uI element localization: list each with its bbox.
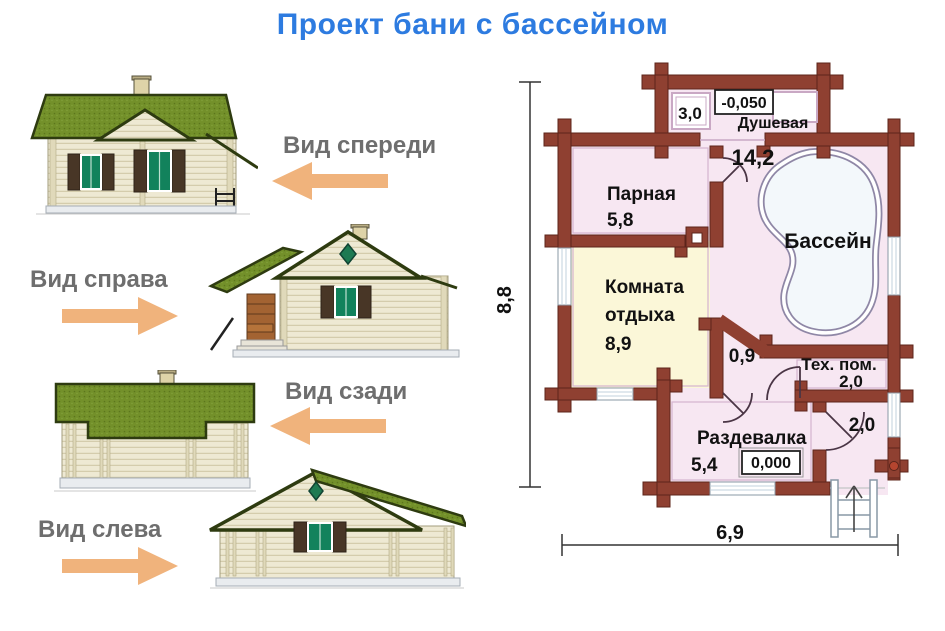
chimney xyxy=(134,79,149,96)
window xyxy=(134,150,185,192)
plan-label-dressing-level: 0,000 xyxy=(751,455,791,472)
floor-plan: 3,0 -0,050 Душевая 14,2 Парная 5,8 Бассе… xyxy=(495,60,945,630)
foundation xyxy=(233,350,459,357)
arrow-left-icon xyxy=(270,406,386,446)
plan-label-lounge-area: 8,9 xyxy=(605,334,631,355)
house-left-view-illustration xyxy=(206,466,466,590)
plan-label-vestibule-area: 2,0 xyxy=(849,415,875,436)
arrow-left-icon xyxy=(272,161,388,201)
plan-label-dressing-area: 5,4 xyxy=(691,455,718,476)
plan-label-lounge-name-1: Комната xyxy=(605,277,684,298)
sauna-stove xyxy=(686,227,708,247)
view-label-right: Вид справа xyxy=(30,266,168,294)
window xyxy=(321,286,371,318)
plan-label-tech-area: 2,0 xyxy=(839,372,863,391)
house-front-view-illustration xyxy=(28,72,258,216)
plan-label-lounge-name-2: отдыха xyxy=(605,305,675,326)
plan-label-corridor-area: 0,9 xyxy=(729,346,755,367)
plan-label-shower-level: -0,050 xyxy=(721,95,766,112)
house-right-view-illustration xyxy=(203,224,471,358)
arrow-right-icon xyxy=(62,546,178,586)
plan-label-steam-area: 5,8 xyxy=(607,210,633,231)
view-label-back: Вид сзади xyxy=(285,378,407,406)
plan-label-pool-name: Бассейн xyxy=(784,230,871,253)
plan-label-dressing-name: Раздевалка xyxy=(697,428,807,449)
view-label-front: Вид спереди xyxy=(283,132,436,160)
entry-stairs xyxy=(831,480,877,537)
foundation xyxy=(46,206,236,213)
plan-label-shower-area: 3,0 xyxy=(678,104,702,123)
plan-dim-height: 8,8 xyxy=(495,286,516,314)
log-end-circle xyxy=(890,462,899,471)
window xyxy=(68,154,114,190)
view-label-left: Вид слева xyxy=(38,516,161,544)
plan-label-shower-name: Душевая xyxy=(738,115,809,132)
bathhouse-project-diagram: Проект бани с бассейном xyxy=(0,0,945,631)
plan-dim-width: 6,9 xyxy=(716,522,744,544)
page-title: Проект бани с бассейном xyxy=(0,8,945,42)
window xyxy=(294,522,346,552)
plan-label-steam-name: Парная xyxy=(607,184,676,205)
porch-door-steps xyxy=(211,294,287,352)
arrow-right-icon xyxy=(62,296,178,336)
plan-label-pool-hall-area: 14,2 xyxy=(732,145,775,170)
foundation xyxy=(216,578,460,586)
